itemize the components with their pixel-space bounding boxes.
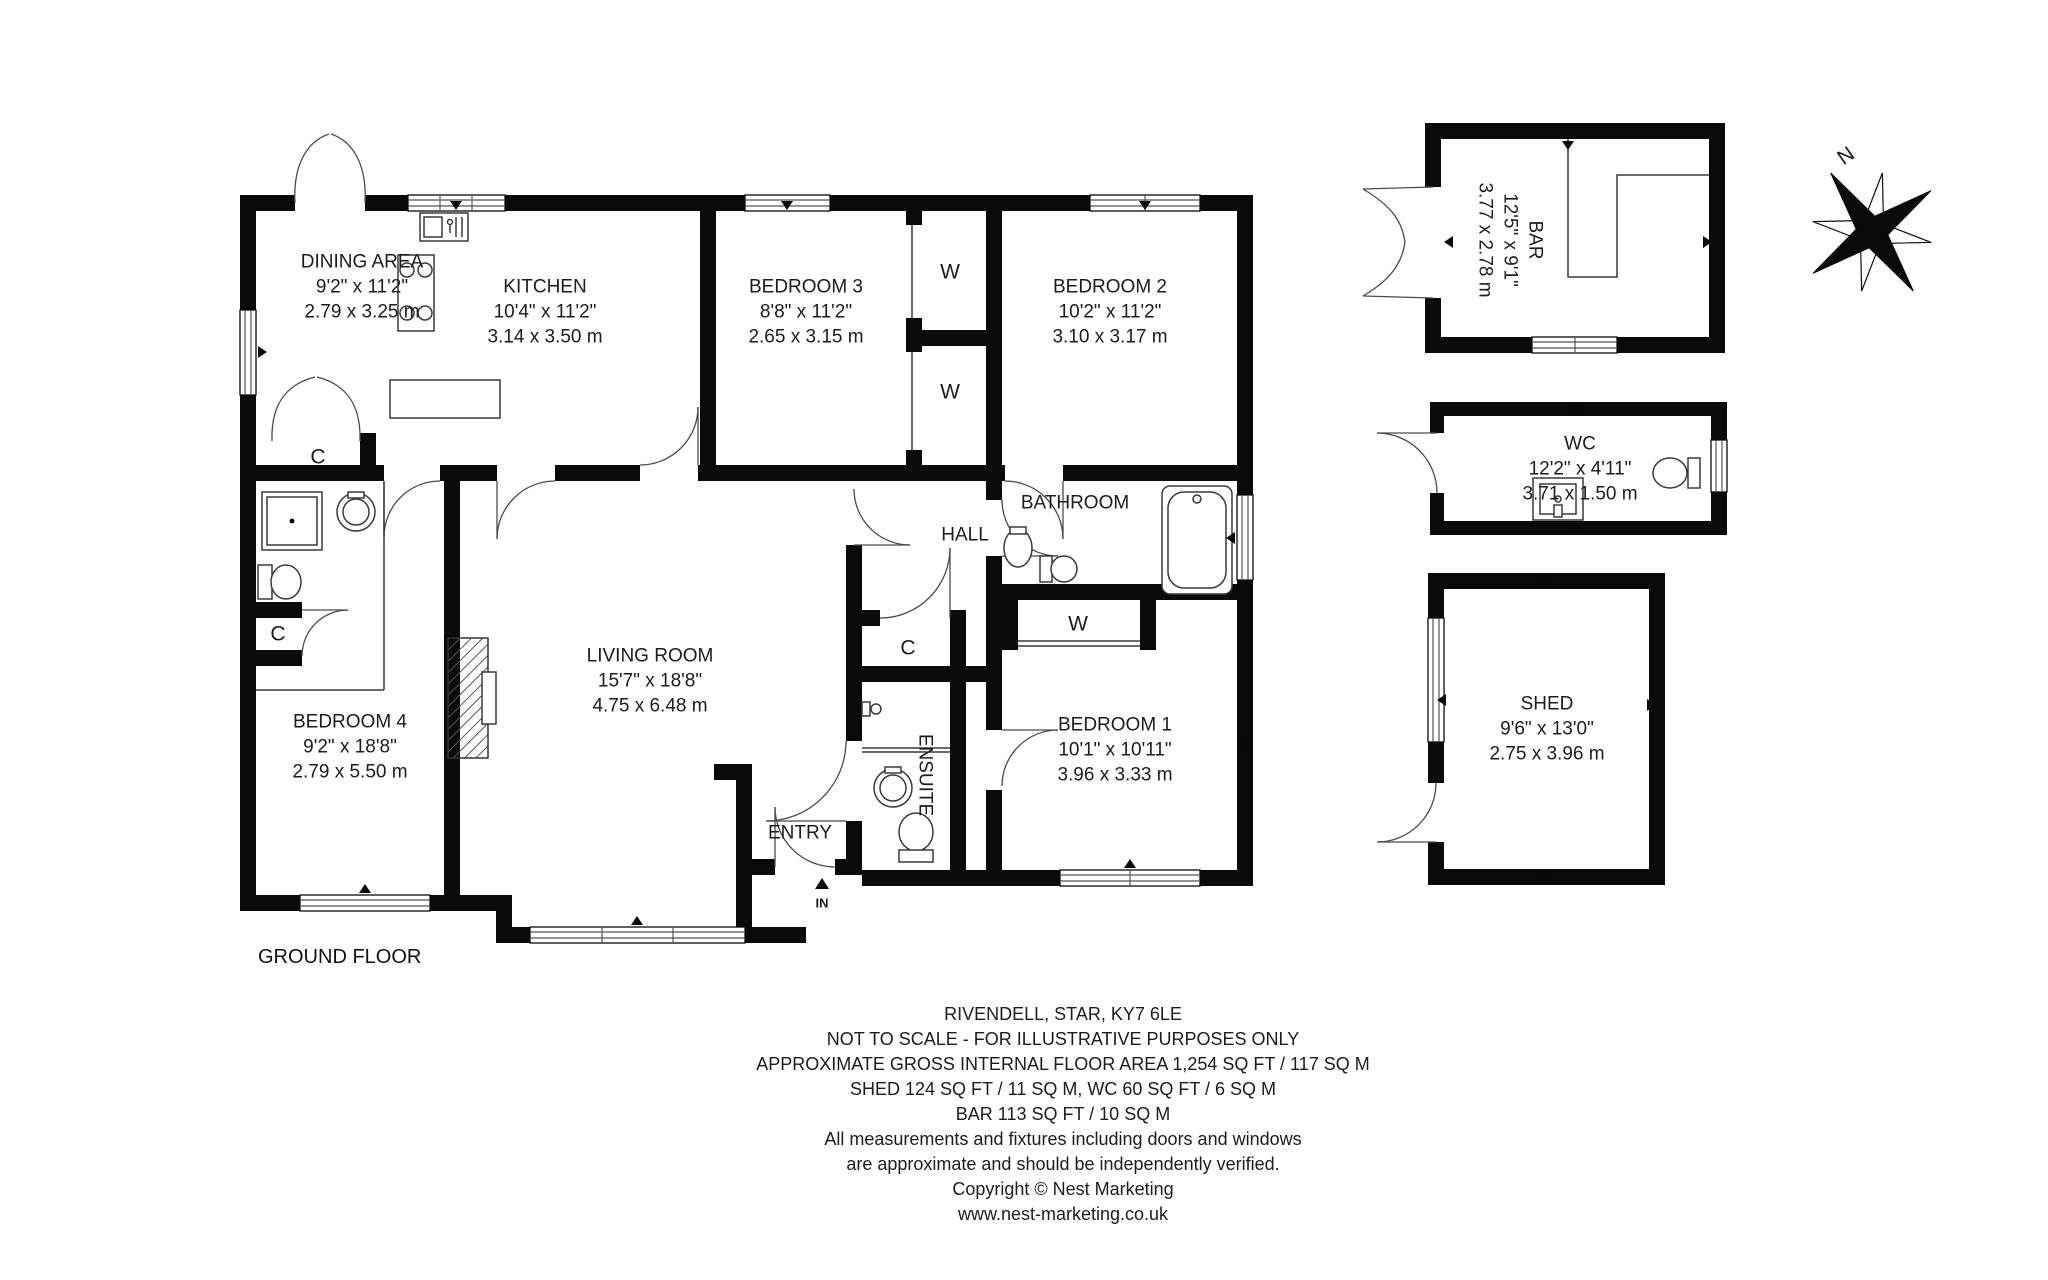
room-dims-metric: 2.79 x 3.25 m [301, 300, 423, 325]
room-label-bedroom4: BEDROOM 4 9'2" x 18'8" 2.79 x 5.50 m [292, 710, 407, 785]
shed-window [1428, 618, 1444, 742]
ensuite-toilet-icon [899, 813, 933, 862]
room-dims-imperial: 12'5" x 9'1" [1498, 182, 1523, 297]
dining-french-doors [295, 134, 365, 203]
closet-label-bedroom4: C [270, 622, 285, 647]
room-label-bedroom2: BEDROOM 2 10'2" x 11'2" 3.10 x 3.17 m [1052, 275, 1167, 350]
room-dims-metric: 3.71 x 1.50 m [1522, 482, 1637, 507]
room-label-living: LIVING ROOM 15'7" x 18'8" 4.75 x 6.48 m [587, 644, 714, 719]
footer-bar-area: BAR 113 SQ FT / 10 SQ M [673, 1102, 1453, 1127]
bedroom1-window [1060, 870, 1200, 886]
room-label-kitchen: KITCHEN 10'4" x 11'2" 3.14 x 3.50 m [487, 275, 602, 350]
bar-double-doors [1363, 187, 1433, 298]
dining-closet-doors [272, 377, 360, 441]
closet-label-hall: C [900, 636, 915, 661]
room-dims-metric: 3.10 x 3.17 m [1052, 325, 1167, 350]
kitchen-sink-icon [420, 213, 468, 241]
room-dims-metric: 2.65 x 3.15 m [748, 325, 863, 350]
wardrobe-label-bedroom1: W [1068, 612, 1088, 637]
wc-door [1377, 433, 1437, 493]
room-dims-metric: 3.77 x 2.78 m [1473, 182, 1498, 297]
footer-address: RIVENDELL, STAR, KY7 6LE [673, 1002, 1453, 1027]
shower-tray-icon [262, 492, 322, 550]
closet-label-dining: C [310, 445, 325, 470]
room-label-bedroom3: BEDROOM 3 8'8" x 11'2" 2.65 x 3.15 m [748, 275, 863, 350]
kitchen-hall-door [497, 481, 555, 539]
ensuite-sink-icon [874, 767, 912, 807]
fireplace-icon [448, 638, 496, 758]
entry-inner-door [766, 741, 846, 821]
room-name: DINING AREA [301, 250, 423, 275]
bedroom3-door [640, 407, 698, 465]
footer-website: www.nest-marketing.co.uk [673, 1202, 1453, 1227]
room-name: WC [1522, 432, 1637, 457]
footer-measurements-note-1: All measurements and fixtures including … [673, 1127, 1453, 1152]
hall-closet-door [880, 548, 950, 618]
hall-living-door [854, 489, 910, 545]
bathroom-window [1237, 495, 1253, 580]
room-dims-imperial: 10'4" x 11'2" [487, 300, 602, 325]
shed-door [1377, 783, 1436, 842]
room-dims-metric: 2.75 x 3.96 m [1489, 742, 1604, 767]
room-name: KITCHEN [487, 275, 602, 300]
bar-window [1532, 337, 1617, 353]
room-dims-imperial: 10'1" x 10'11" [1057, 738, 1172, 763]
entrance-arrow-icon [815, 878, 829, 889]
living-window [530, 927, 745, 943]
footer-measurements-note-2: are approximate and should be independen… [673, 1152, 1453, 1177]
entrance-label: IN [816, 891, 829, 916]
area-label-bathroom: BATHROOM [1021, 491, 1129, 516]
room-label-bedroom1: BEDROOM 1 10'1" x 10'11" 3.96 x 3.33 m [1057, 713, 1172, 788]
room-dims-imperial: 9'2" x 11'2" [301, 275, 423, 300]
bedroom4-sink-icon [337, 492, 375, 531]
wardrobe-label-lower: W [940, 380, 960, 405]
room-name: SHED [1489, 692, 1604, 717]
bedroom4-window [300, 895, 430, 911]
compass-rose-icon [1813, 173, 1931, 291]
bedroom1-door [1002, 730, 1058, 786]
bedroom4-closet-door [302, 610, 348, 656]
floor-title: GROUND FLOOR [258, 946, 421, 969]
room-label-dining: DINING AREA 9'2" x 11'2" 2.79 x 3.25 m [301, 250, 423, 325]
room-label-bar: BAR 12'5" x 9'1" 3.77 x 2.78 m [1473, 182, 1548, 297]
room-label-wc: WC 12'2" x 4'11" 3.71 x 1.50 m [1522, 432, 1637, 507]
room-dims-metric: 3.96 x 3.33 m [1057, 763, 1172, 788]
room-dims-imperial: 8'8" x 11'2" [748, 300, 863, 325]
footer-shed-wc-area: SHED 124 SQ FT / 11 SQ M, WC 60 SQ FT / … [673, 1077, 1453, 1102]
bedroom4-toilet-icon [258, 565, 301, 599]
room-name: BEDROOM 2 [1052, 275, 1167, 300]
room-dims-metric: 4.75 x 6.48 m [587, 694, 714, 719]
floorplan-page: DINING AREA 9'2" x 11'2" 2.79 x 3.25 m K… [0, 0, 2048, 1280]
footer-disclaimer-scale: NOT TO SCALE - FOR ILLUSTRATIVE PURPOSES… [673, 1027, 1453, 1052]
room-dims-imperial: 12'2" x 4'11" [1522, 457, 1637, 482]
area-label-ensuite: ENSUITE [913, 734, 938, 816]
room-dims-metric: 2.79 x 5.50 m [292, 760, 407, 785]
bedroom4-door [384, 481, 440, 537]
room-name: LIVING ROOM [587, 644, 714, 669]
room-dims-imperial: 10'2" x 11'2" [1052, 300, 1167, 325]
bathroom-sink-icon [1004, 527, 1032, 567]
wc-window [1711, 440, 1727, 492]
room-name: BEDROOM 1 [1057, 713, 1172, 738]
room-dims-imperial: 9'6" x 13'0" [1489, 717, 1604, 742]
room-name: BAR [1523, 182, 1548, 297]
wc-toilet-icon [1653, 458, 1700, 488]
room-dims-metric: 3.14 x 3.50 m [487, 325, 602, 350]
footer-floor-area: APPROXIMATE GROSS INTERNAL FLOOR AREA 1,… [673, 1052, 1453, 1077]
footer-copyright: Copyright © Nest Marketing [673, 1177, 1453, 1202]
dining-window [240, 310, 256, 395]
footer-notes: RIVENDELL, STAR, KY7 6LE NOT TO SCALE - … [673, 1002, 1453, 1227]
room-dims-imperial: 9'2" x 18'8" [292, 735, 407, 760]
area-label-hall: HALL [941, 523, 989, 548]
bathtub-icon [1162, 486, 1232, 594]
room-name: BEDROOM 4 [292, 710, 407, 735]
room-name: BEDROOM 3 [748, 275, 863, 300]
room-label-shed: SHED 9'6" x 13'0" 2.75 x 3.96 m [1489, 692, 1604, 767]
room-dims-imperial: 15'7" x 18'8" [587, 669, 714, 694]
bathroom-toilet-icon [1040, 556, 1077, 582]
area-label-entry: ENTRY [768, 821, 832, 846]
wardrobe-label-upper: W [940, 260, 960, 285]
bar-counter [1568, 139, 1709, 277]
kitchen-peninsula [390, 380, 500, 418]
